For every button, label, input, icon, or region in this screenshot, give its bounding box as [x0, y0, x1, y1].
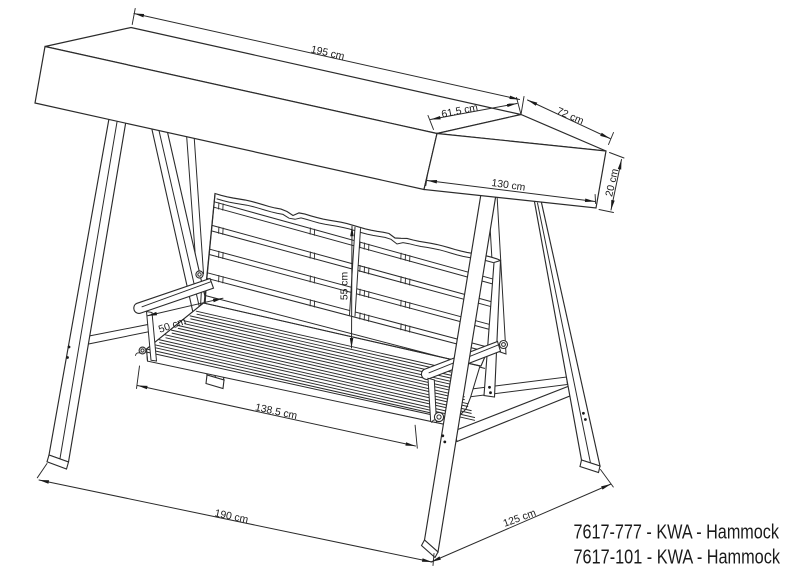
svg-text:7617-101 - KWA - Hammock: 7617-101 - KWA - Hammock: [574, 547, 781, 569]
svg-text:7617-777 - KWA - Hammock: 7617-777 - KWA - Hammock: [574, 522, 780, 544]
svg-text:55 cm: 55 cm: [340, 272, 351, 300]
